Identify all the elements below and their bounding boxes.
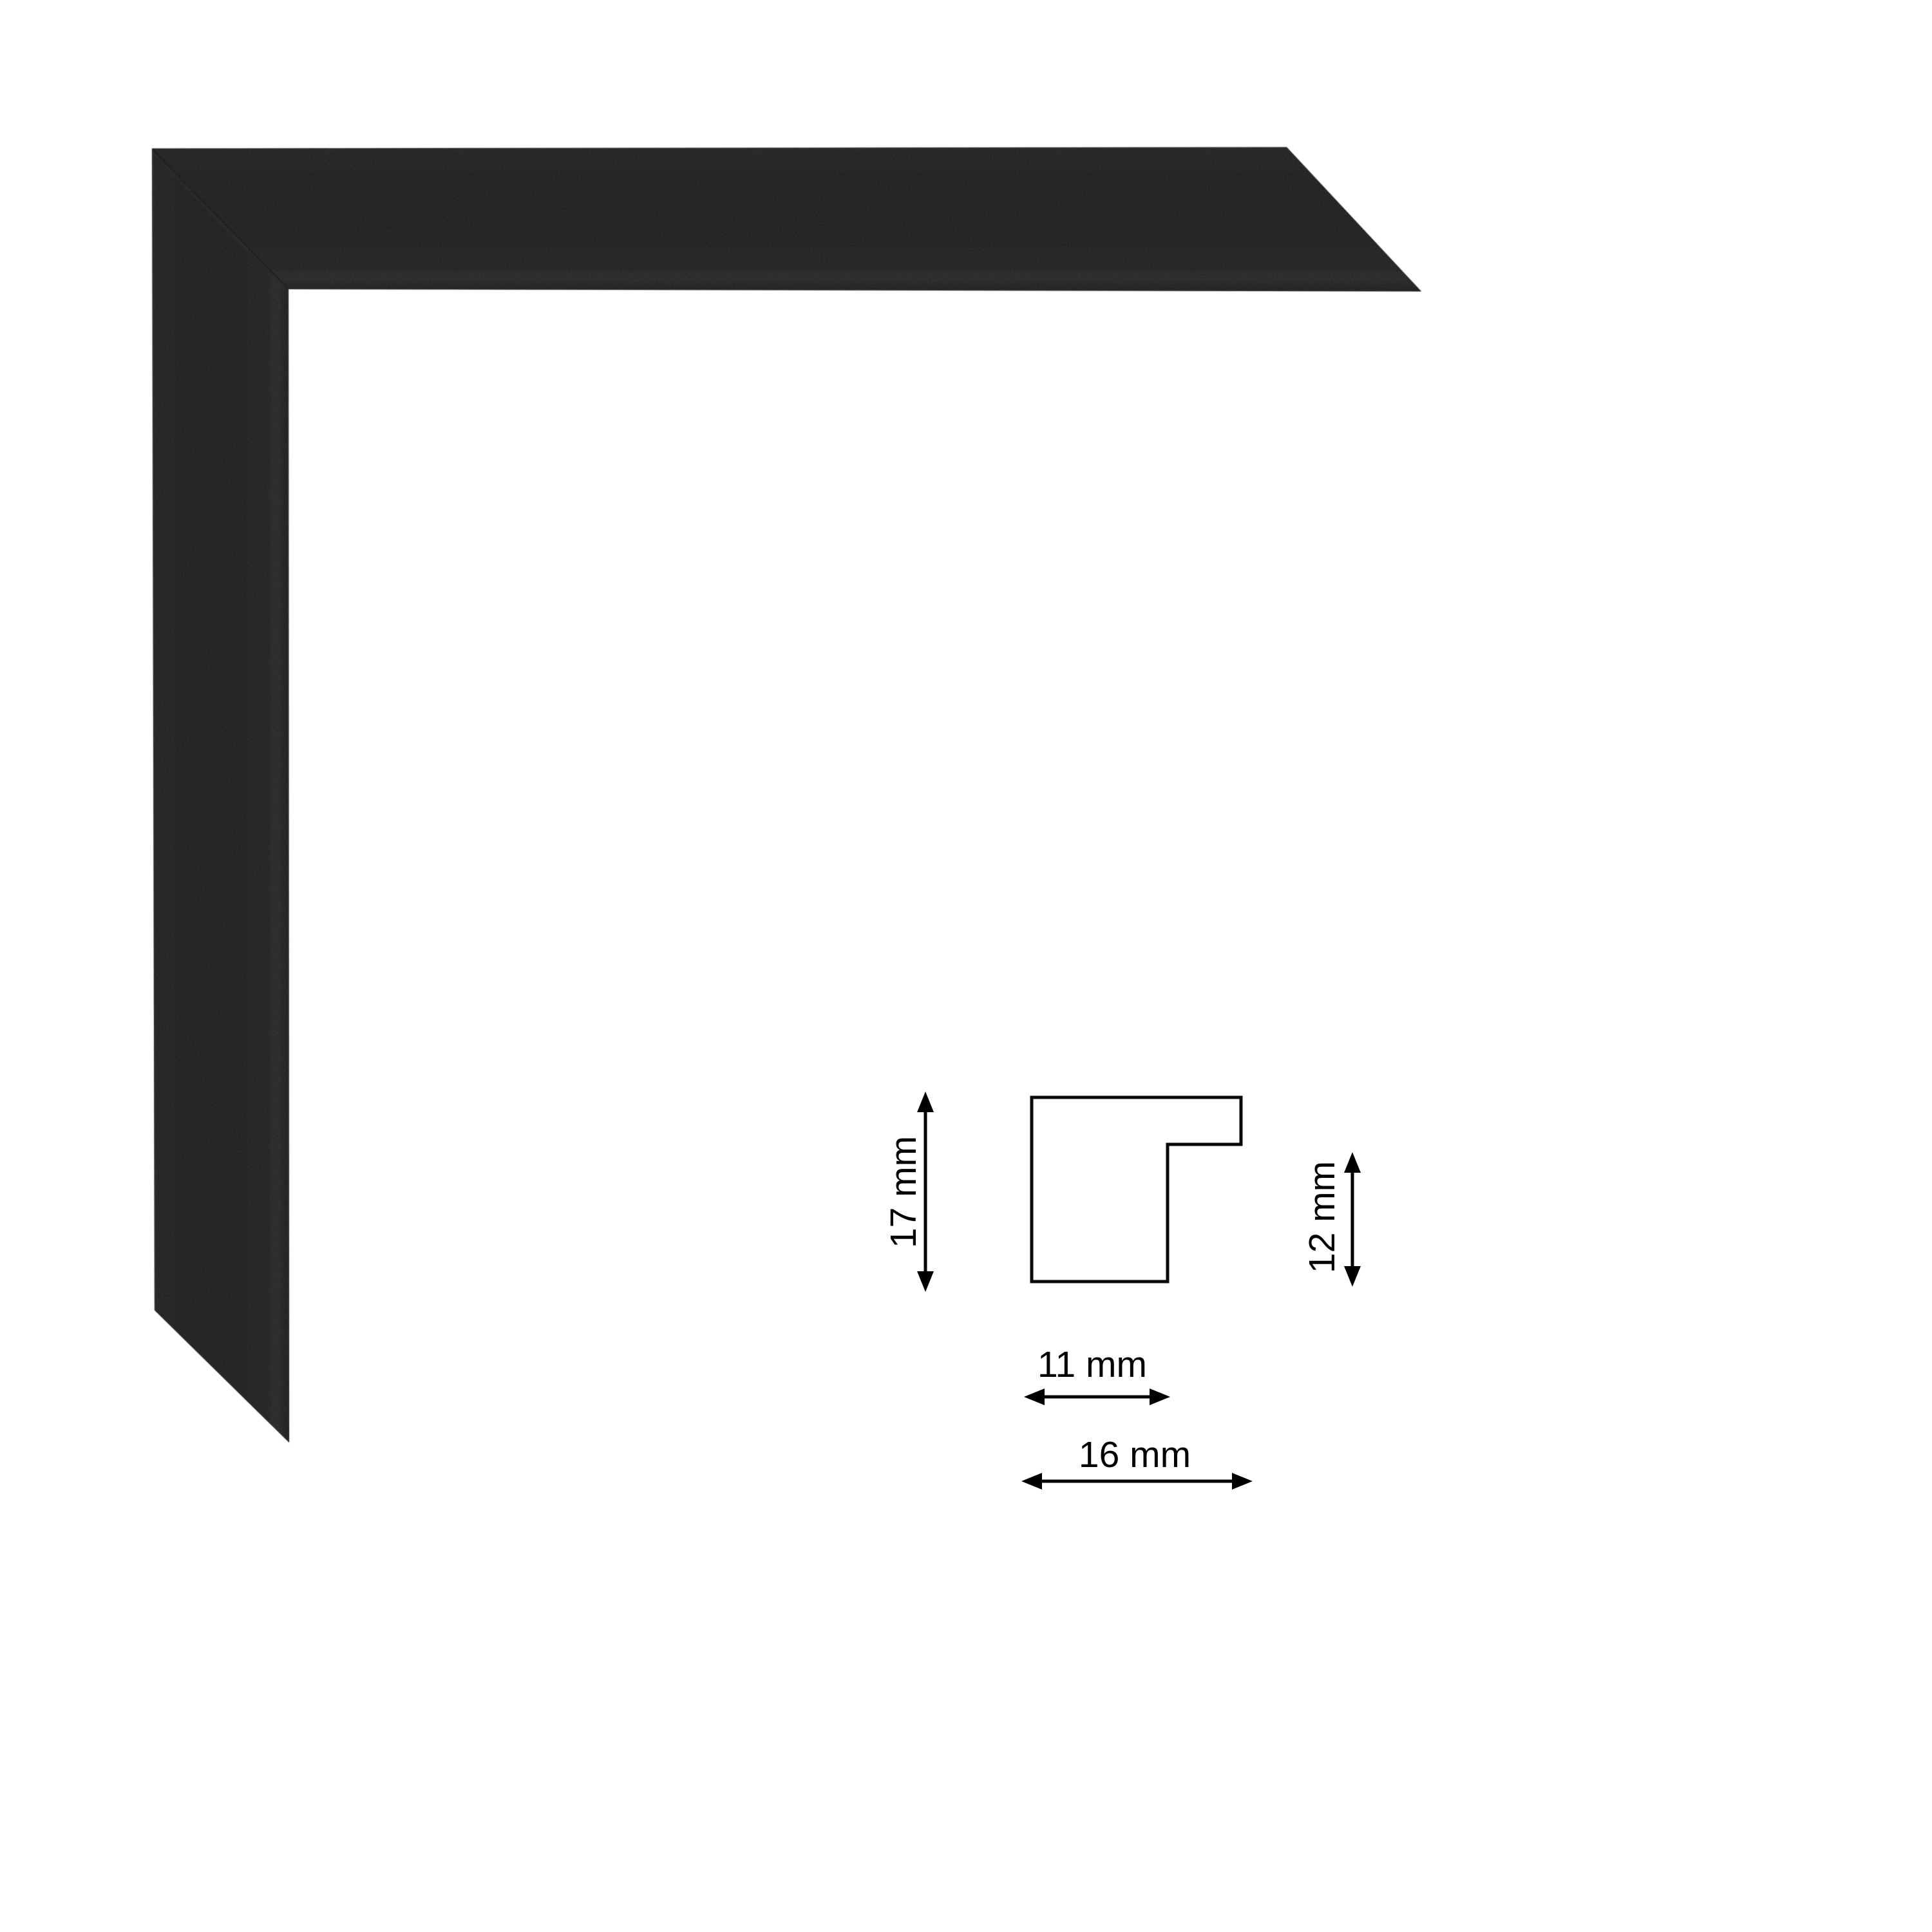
svg-text:16 mm: 16 mm (1079, 1434, 1191, 1475)
svg-text:12 mm: 12 mm (1302, 1161, 1343, 1273)
svg-text:11 mm: 11 mm (1037, 1344, 1147, 1385)
svg-text:17 mm: 17 mm (883, 1136, 924, 1248)
